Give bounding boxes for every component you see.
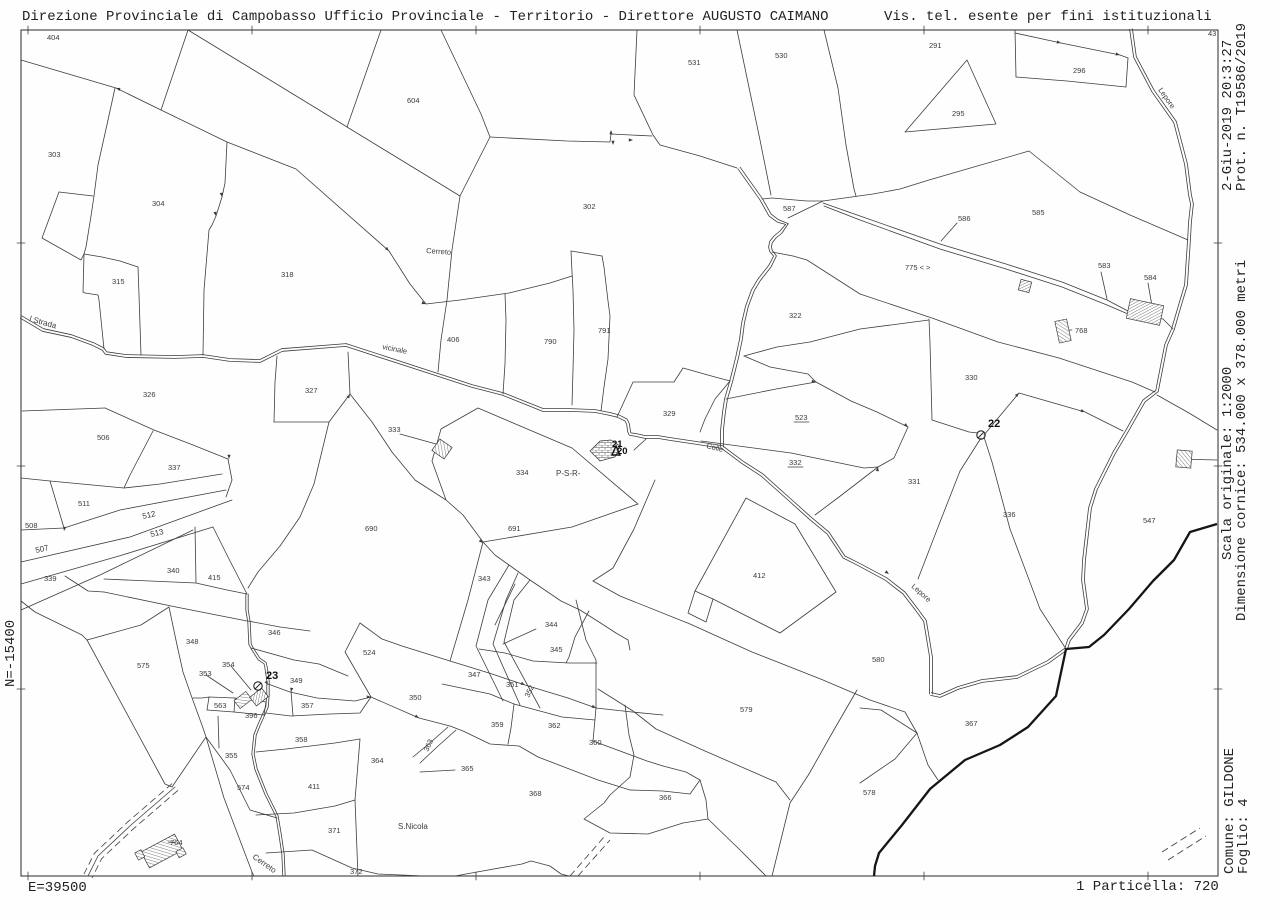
svg-text:791: 791 — [598, 326, 611, 335]
svg-text:360: 360 — [589, 738, 602, 747]
svg-text:411: 411 — [308, 782, 320, 791]
svg-text:506: 506 — [97, 433, 110, 442]
svg-text:365: 365 — [461, 764, 474, 773]
svg-text:583: 583 — [1098, 261, 1111, 270]
svg-text:318: 318 — [281, 270, 294, 279]
svg-text:Direzione Provinciale di Campo: Direzione Provinciale di Campobasso Uffi… — [22, 9, 829, 25]
svg-text:368: 368 — [529, 789, 542, 798]
svg-text:347: 347 — [468, 670, 481, 679]
svg-text:523: 523 — [795, 413, 808, 422]
svg-text:511: 511 — [78, 499, 90, 508]
svg-text:396: 396 — [245, 711, 258, 720]
svg-text:547: 547 — [1143, 516, 1156, 525]
svg-text:Dimensione cornice: 534.000 x: Dimensione cornice: 534.000 x 378.000 me… — [1234, 260, 1250, 621]
svg-text:353: 353 — [199, 669, 212, 678]
svg-text:23: 23 — [266, 670, 278, 682]
svg-text:531: 531 — [688, 58, 701, 67]
svg-text:346: 346 — [268, 628, 281, 637]
svg-text:358: 358 — [295, 735, 308, 744]
svg-text:S.Nicola: S.Nicola — [398, 822, 428, 831]
svg-text:362: 362 — [548, 721, 561, 730]
svg-text:327: 327 — [305, 386, 318, 395]
svg-text:E=39500: E=39500 — [28, 880, 87, 896]
svg-text:354: 354 — [222, 660, 235, 669]
svg-text:580: 580 — [872, 655, 885, 664]
svg-text:329: 329 — [663, 409, 676, 418]
svg-text:574: 574 — [237, 783, 250, 792]
svg-text:Cerreto: Cerreto — [426, 246, 452, 257]
svg-text:Vis. tel. esente per fini isti: Vis. tel. esente per fini istituzionali — [884, 9, 1212, 25]
svg-text:587: 587 — [783, 204, 796, 213]
svg-text:355: 355 — [225, 751, 238, 760]
svg-text:508: 508 — [25, 521, 38, 530]
svg-text:336: 336 — [1003, 510, 1016, 519]
svg-text:304: 304 — [152, 199, 165, 208]
svg-text:333: 333 — [388, 425, 401, 434]
svg-text:322: 322 — [789, 311, 802, 320]
svg-text:339: 339 — [44, 574, 57, 583]
svg-text:349: 349 — [290, 676, 303, 685]
svg-text:348: 348 — [186, 637, 199, 646]
svg-text:768: 768 — [1075, 326, 1088, 335]
svg-text:315: 315 — [112, 277, 125, 286]
svg-text:296: 296 — [1073, 66, 1086, 75]
svg-text:351: 351 — [506, 680, 519, 689]
svg-text:359: 359 — [491, 720, 504, 729]
svg-text:372: 372 — [350, 867, 363, 876]
svg-text:404: 404 — [47, 33, 60, 42]
svg-text:406: 406 — [447, 335, 460, 344]
svg-text:585: 585 — [1032, 208, 1045, 217]
svg-text:563: 563 — [214, 701, 227, 710]
svg-text:790: 790 — [544, 337, 557, 346]
svg-text:Foglio: 4: Foglio: 4 — [1236, 798, 1252, 874]
svg-text:371: 371 — [328, 826, 341, 835]
svg-text:578: 578 — [863, 788, 876, 797]
svg-text:326: 326 — [143, 390, 156, 399]
svg-text:332: 332 — [789, 458, 802, 467]
svg-text:575: 575 — [137, 661, 150, 670]
svg-text:P-S-R-: P-S-R- — [556, 469, 581, 478]
svg-text:Prot. n. T19586/2019: Prot. n. T19586/2019 — [1234, 23, 1250, 191]
svg-text:43: 43 — [1208, 29, 1216, 38]
svg-text:690: 690 — [365, 524, 378, 533]
svg-text:524: 524 — [363, 648, 376, 657]
svg-text:691: 691 — [508, 524, 521, 533]
svg-text:367: 367 — [965, 719, 978, 728]
svg-text:22: 22 — [988, 418, 1000, 430]
svg-text:345: 345 — [550, 645, 563, 654]
svg-text:412: 412 — [753, 571, 766, 580]
svg-text:366: 366 — [659, 793, 672, 802]
svg-text:344: 344 — [545, 620, 558, 629]
svg-text:764: 764 — [170, 838, 183, 847]
svg-text:530: 530 — [775, 51, 788, 60]
svg-text:357: 357 — [301, 701, 314, 710]
svg-text:586: 586 — [958, 214, 971, 223]
svg-text:1 Particella: 720: 1 Particella: 720 — [1076, 879, 1219, 895]
svg-text:604: 604 — [407, 96, 420, 105]
svg-text:N=-15400: N=-15400 — [3, 620, 19, 687]
svg-text:579: 579 — [740, 705, 753, 714]
svg-text:350: 350 — [409, 693, 422, 702]
svg-text:415: 415 — [208, 573, 221, 582]
svg-text:291: 291 — [929, 41, 942, 50]
svg-text:364: 364 — [371, 756, 384, 765]
svg-text:775 < >: 775 < > — [905, 263, 931, 272]
svg-text:330: 330 — [965, 373, 978, 382]
svg-text:302: 302 — [583, 202, 596, 211]
svg-text:303: 303 — [48, 150, 61, 159]
svg-text:337: 337 — [168, 463, 181, 472]
svg-text:340: 340 — [167, 566, 180, 575]
svg-text:343: 343 — [478, 574, 491, 583]
svg-text:295: 295 — [952, 109, 965, 118]
svg-text:334: 334 — [516, 468, 529, 477]
svg-text:20: 20 — [617, 446, 628, 457]
svg-text:331: 331 — [908, 477, 921, 486]
svg-text:584: 584 — [1144, 273, 1157, 282]
